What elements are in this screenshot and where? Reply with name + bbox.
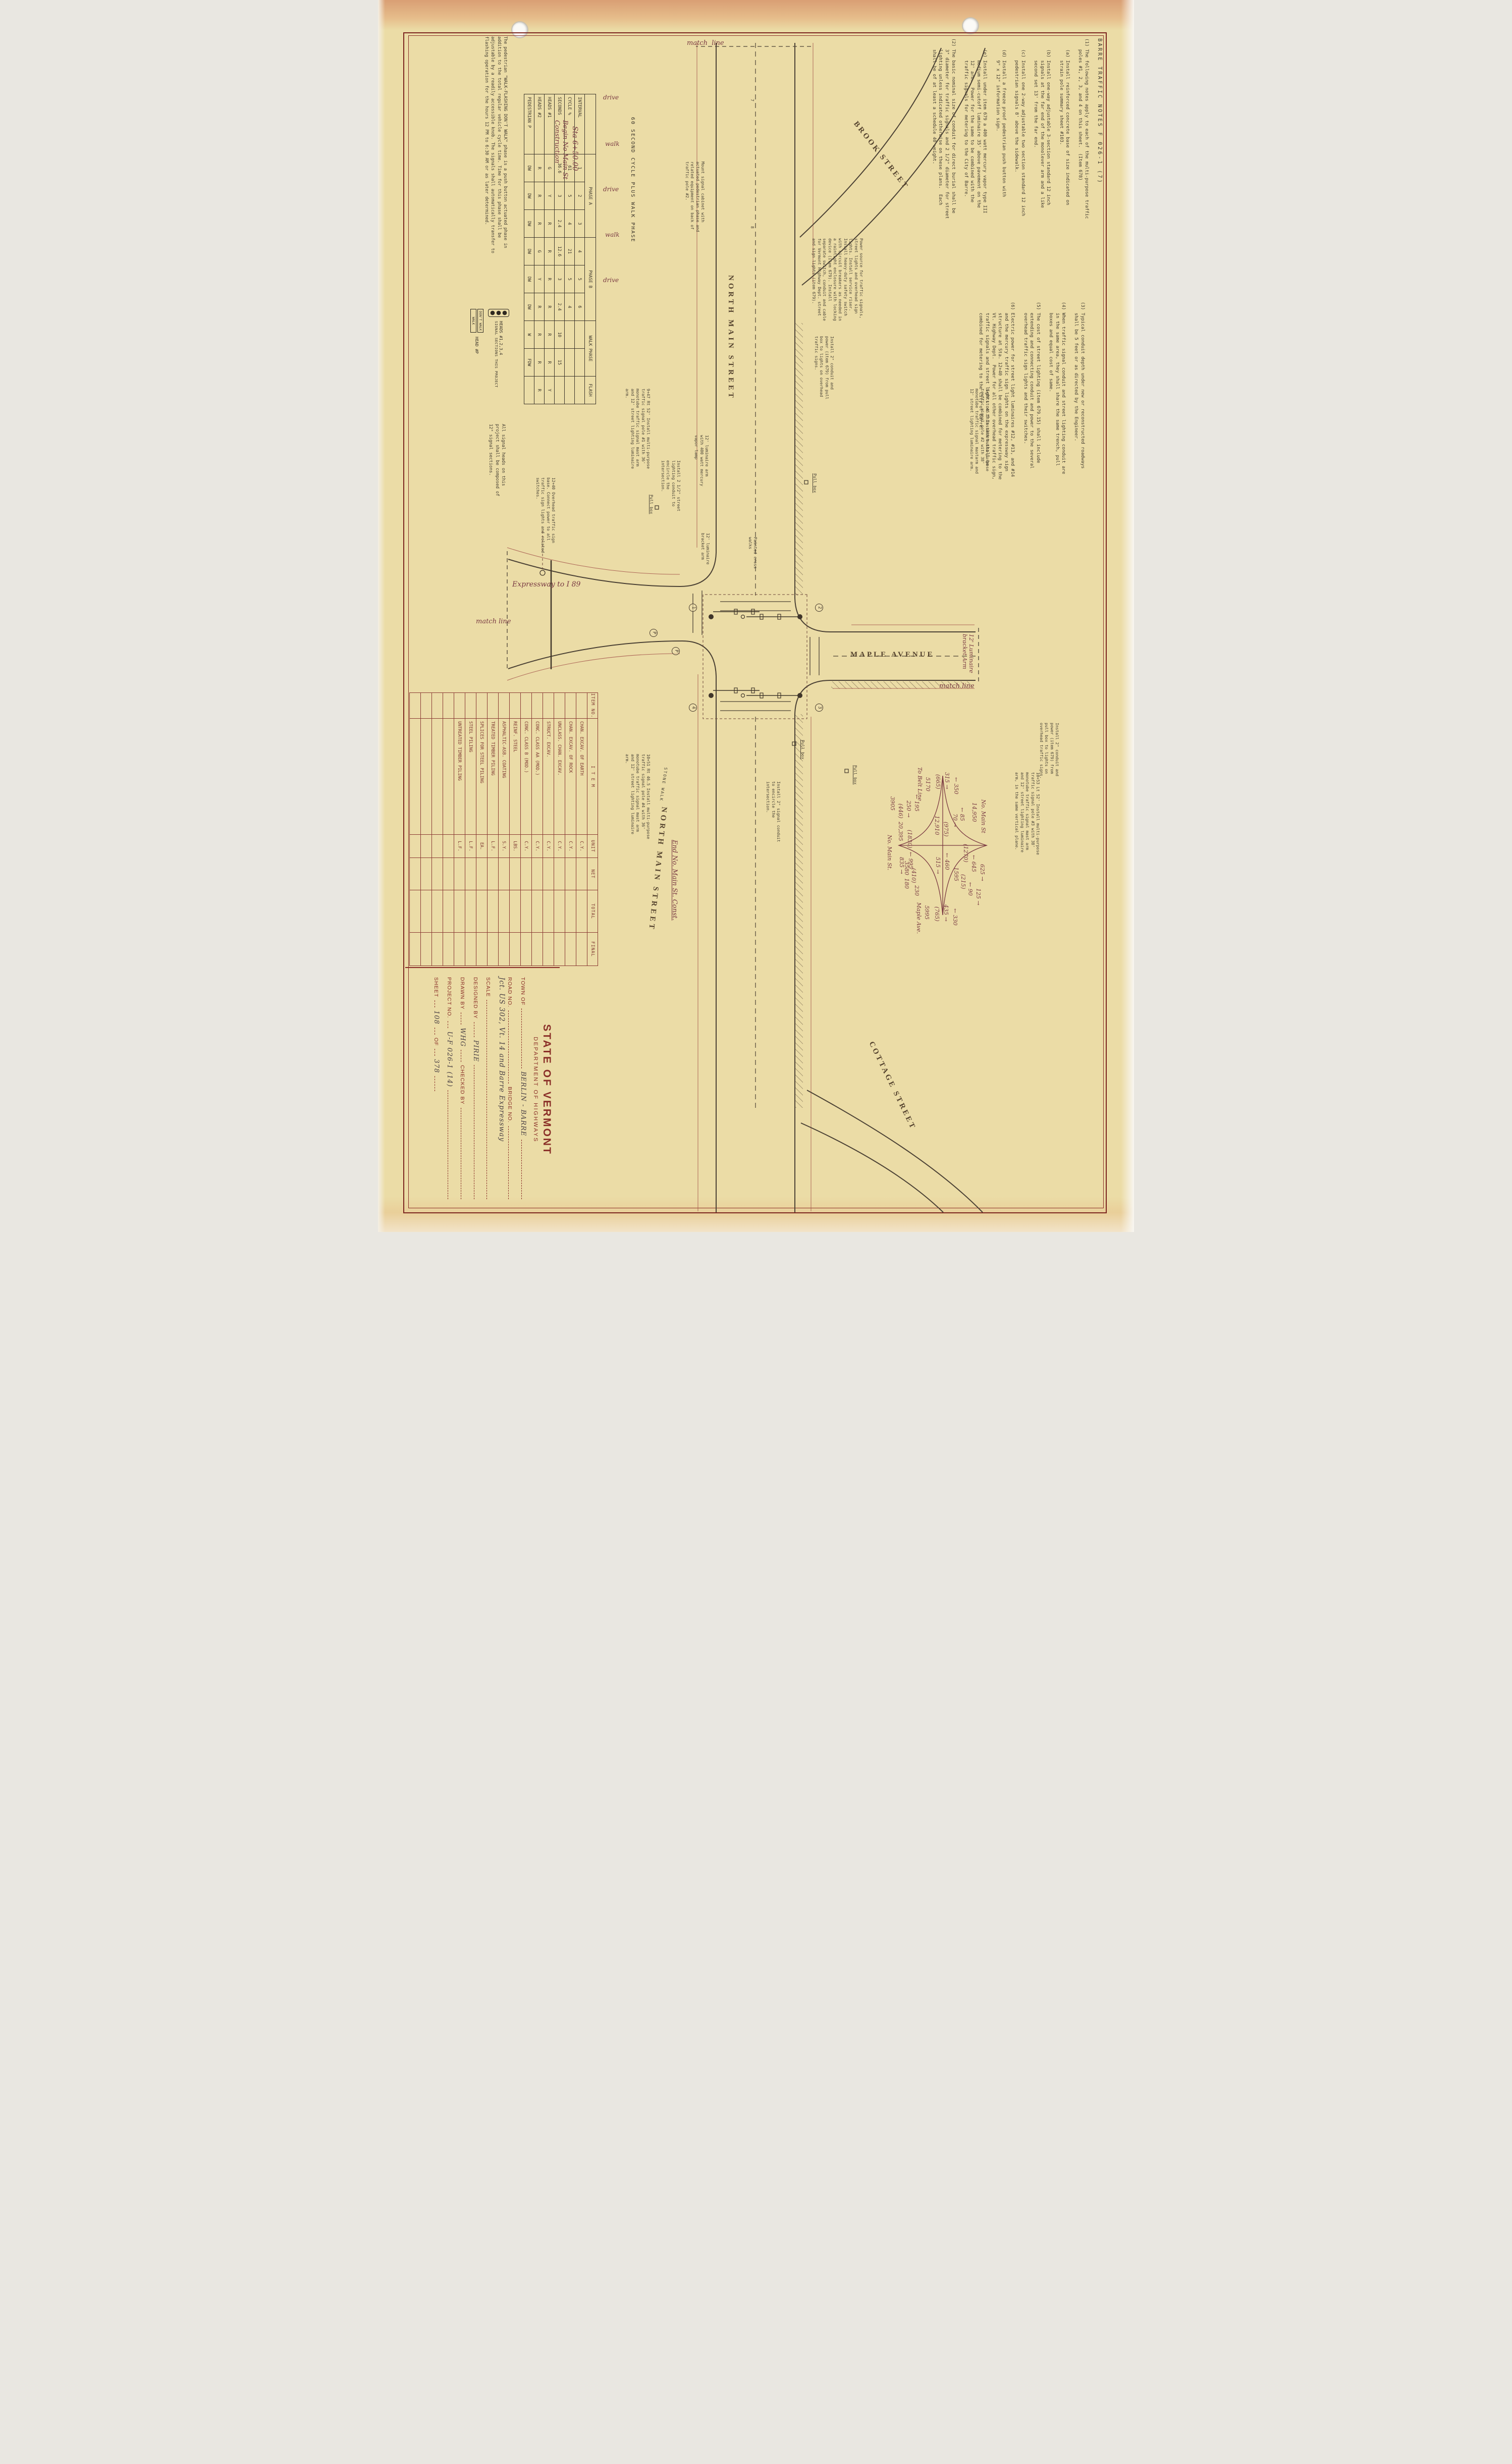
table-cell xyxy=(432,718,443,834)
table-row: TREATED TIMBER PILINGL.F. xyxy=(488,693,499,966)
annotation: 3 xyxy=(815,704,823,712)
annotation: walk xyxy=(605,140,620,148)
table-row: ASPHALTIC-ASB. COATINGS.Y. xyxy=(499,693,510,966)
project-no-value: U-F 026-1 (14) xyxy=(446,1031,453,1087)
items-table: ITEM NO. I T E M UNIT NET TOTAL FINAL CH… xyxy=(409,692,598,966)
annotation: Install 2" conduit and power (item 679) … xyxy=(1038,723,1059,784)
annotation: 10+53 Lt 52' Install multi-purpose traff… xyxy=(1014,772,1040,859)
table-cell xyxy=(454,693,465,718)
annotation: 10+51 Rt 46.5 Install multi-purpose traf… xyxy=(624,754,651,841)
annotation: Pull box xyxy=(812,473,817,493)
table-cell: CHAN. EXCAV. OF EARTH xyxy=(576,718,587,834)
table-cell xyxy=(432,890,443,932)
table-cell: TREATED TIMBER PILING xyxy=(488,718,499,834)
table-cell xyxy=(488,890,499,932)
table-cell: L.F. xyxy=(454,834,465,858)
annotation: 515 → xyxy=(934,857,941,874)
annotation: Install 2 1/2" street lighting conduit t… xyxy=(660,460,681,522)
table-cell xyxy=(499,932,510,966)
table-cell xyxy=(565,932,576,966)
table-cell xyxy=(454,858,465,890)
annotation: (1830) xyxy=(906,830,913,848)
annotation: match line xyxy=(687,39,724,47)
table-cell xyxy=(499,693,510,718)
table-cell: EA. xyxy=(476,834,488,858)
annotation: End No. Main St. Const. xyxy=(670,840,678,921)
table-row xyxy=(410,693,421,966)
table-cell xyxy=(499,858,510,890)
annotation: 5170 xyxy=(924,777,931,791)
route-value: Jct. US 302, Vt. 14 and Barre Expressway xyxy=(498,977,506,1142)
table-cell: STRUCT. EXCAV. xyxy=(543,718,554,834)
table-cell xyxy=(543,693,554,718)
table-cell xyxy=(443,693,454,718)
annotation: 20,395 xyxy=(897,822,904,841)
table-row: CHAN. EXCAV. OF ROCKC.Y. xyxy=(565,693,576,966)
table-cell xyxy=(499,890,510,932)
annotation: Install 2" conduit and power (item 679) … xyxy=(813,336,834,402)
annotation: match line xyxy=(939,682,974,690)
annotation: 5995 xyxy=(923,905,930,920)
table-row: CONC. CLASS AA (MOD.)C.Y. xyxy=(532,693,543,966)
annotation: drive xyxy=(603,94,619,101)
table-cell xyxy=(432,858,443,890)
annotation: 12' Luminaire bracket Arm xyxy=(961,634,975,678)
table-cell xyxy=(476,858,488,890)
annotation: Pull box xyxy=(852,765,857,785)
table-cell xyxy=(521,932,532,966)
annotation: 250 → xyxy=(905,800,912,818)
table-cell xyxy=(510,693,521,718)
annotation: 12' luminaire bracket arm xyxy=(699,533,710,575)
annotation: 12,910 xyxy=(933,816,940,835)
table-cell xyxy=(465,890,476,932)
annotation: NORTH MAIN STREET xyxy=(726,275,735,400)
annotation: 4 xyxy=(689,704,697,712)
annotation: 14,950 xyxy=(970,802,978,822)
annotation: Begin No Main St Construction xyxy=(553,120,569,206)
annotation: Pull box xyxy=(800,740,805,760)
annotation: ← 330 xyxy=(951,908,958,926)
annotation: COTTAGE STREET xyxy=(867,1040,917,1132)
annotation: (665) xyxy=(934,774,941,789)
table-cell xyxy=(443,834,454,858)
table-row xyxy=(421,693,432,966)
annotation: 2 xyxy=(815,604,823,612)
annotation: No. Main St xyxy=(980,799,987,833)
table-cell xyxy=(432,693,443,718)
table-cell xyxy=(554,890,565,932)
table-row: STEEL PILINGL.F. xyxy=(465,693,476,966)
table-row: CHAN. EXCAV. OF EARTHC.Y. xyxy=(576,693,587,966)
table-cell: C.Y. xyxy=(576,834,587,858)
annotation: 12' luminaire arm with 400 watt mercury … xyxy=(693,435,709,488)
town-value: BERLIN - BARRE xyxy=(519,1072,527,1137)
table-cell xyxy=(421,858,432,890)
table-cell: UNTREATED TIMBER PILING xyxy=(454,718,465,834)
table-row: UNTREATED TIMBER PILINGL.F. xyxy=(454,693,465,966)
table-cell xyxy=(510,890,521,932)
table-cell xyxy=(421,693,432,718)
annotation: Mount signal cabinet with actuated pedes… xyxy=(684,162,705,243)
annotation: 1595 xyxy=(952,867,959,881)
table-cell xyxy=(565,890,576,932)
table-cell: C.Y. xyxy=(532,834,543,858)
table-row: SPLICES FOR STEEL PILINGEA. xyxy=(476,693,488,966)
table-cell xyxy=(443,932,454,966)
annotation: drive xyxy=(603,186,619,193)
annotation: Maple Ave. xyxy=(915,902,922,934)
road-no-label: ROAD NO. xyxy=(507,977,513,1007)
table-cell: L.F. xyxy=(465,834,476,858)
annotation: 8 xyxy=(749,226,754,229)
annotation: ← 350 xyxy=(952,777,959,794)
table-cell xyxy=(454,932,465,966)
designed-by-value: PIRIE xyxy=(472,1040,479,1062)
table-row: STRUCT. EXCAV.C.Y. xyxy=(543,693,554,966)
annotation: STONE WALK xyxy=(658,767,668,802)
annotation: (410) xyxy=(910,868,917,883)
table-cell xyxy=(521,693,532,718)
annotation: 315 → xyxy=(943,772,950,789)
annotation: 625 → xyxy=(979,864,986,881)
table-cell xyxy=(521,890,532,932)
annotation: ← 195 xyxy=(913,794,920,812)
table-cell xyxy=(554,858,565,890)
table-cell xyxy=(421,890,432,932)
table-cell: STEEL PILING xyxy=(465,718,476,834)
table-cell: C.Y. xyxy=(554,834,565,858)
table-cell xyxy=(543,890,554,932)
annotation: ← 645 xyxy=(970,855,977,872)
table-row: REINF. STEELLBS. xyxy=(510,693,521,966)
annotation: 3580 xyxy=(903,861,910,875)
table-cell xyxy=(410,932,421,966)
annotation: 230 xyxy=(913,885,920,896)
table-cell xyxy=(543,858,554,890)
annotation: 1 xyxy=(689,604,697,612)
annotation: 435 → xyxy=(942,904,949,922)
annotation: ← 85 xyxy=(958,808,965,821)
table-cell: UNCLASS. CHAN. EXCAV. xyxy=(554,718,565,834)
table-cell xyxy=(532,858,543,890)
annotation: Sta 6+50.00 xyxy=(570,126,579,171)
table-cell: C.Y. xyxy=(543,834,554,858)
table-cell xyxy=(488,858,499,890)
annotation: 180 xyxy=(903,878,910,889)
agency-dept: DEPARTMENT OF HIGHWAYS xyxy=(532,968,538,1211)
table-cell xyxy=(410,718,421,834)
table-cell: C.Y. xyxy=(521,834,532,858)
table-cell xyxy=(421,718,432,834)
table-cell xyxy=(488,693,499,718)
items-table-header: ITEM NO. I T E M UNIT NET TOTAL FINAL xyxy=(587,693,598,966)
table-cell xyxy=(476,890,488,932)
table-cell xyxy=(443,890,454,932)
annotation: Painted cross walks xyxy=(747,537,758,569)
project-no-label: PROJECT NO. xyxy=(446,977,452,1018)
annotation: 7 xyxy=(749,99,754,101)
drawn-by-label: DRAWN BY xyxy=(459,977,465,1009)
table-cell xyxy=(410,890,421,932)
agency-name: STATE OF VERMONT xyxy=(541,968,553,1211)
table-cell xyxy=(410,834,421,858)
annotation: (765) xyxy=(933,906,940,922)
table-cell xyxy=(565,858,576,890)
annotation: drive xyxy=(603,277,619,284)
annotation: P xyxy=(672,647,680,655)
annotation: Pull box xyxy=(649,495,654,514)
table-cell xyxy=(576,858,587,890)
annotation: (446) xyxy=(897,804,904,819)
of-label: OF xyxy=(433,1038,439,1046)
table-cell xyxy=(510,858,521,890)
annotation: ← 460 xyxy=(943,853,950,870)
table-row: CONC. CLASS B (MOD.)C.Y. xyxy=(521,693,532,966)
table-cell xyxy=(476,693,488,718)
annotation: 12+40 Overhead traffic sign base. Connec… xyxy=(534,477,556,554)
table-cell xyxy=(576,932,587,966)
table-cell xyxy=(543,932,554,966)
table-cell xyxy=(554,693,565,718)
drawing-sheet-landscape: BARRE TRAFFIC NOTES F 026-1 (7) (1) The … xyxy=(378,0,1134,1232)
annotation: P xyxy=(650,629,658,637)
sheet-label: SHEET xyxy=(433,977,439,997)
scanned-plan-sheet: BARRE TRAFFIC NOTES F 026-1 (7) (1) The … xyxy=(378,0,1134,1232)
annotation: 9+47 Rt 52' Install multi-purpose traffi… xyxy=(624,389,651,475)
annotation: Install 2" signal conduit to encircle th… xyxy=(765,781,781,845)
table-cell xyxy=(521,858,532,890)
annotation: Expressway to I 89 xyxy=(512,580,580,590)
annotation: (215) xyxy=(959,874,966,889)
table-cell xyxy=(454,890,465,932)
annotation: ← 90 xyxy=(966,882,974,896)
table-cell xyxy=(421,932,432,966)
table-cell xyxy=(465,693,476,718)
bridge-no-label: BRIDGE NO. xyxy=(507,1087,513,1123)
table-cell xyxy=(576,693,587,718)
table-cell: SPLICES FOR STEEL PILING xyxy=(476,718,488,834)
table-cell xyxy=(465,932,476,966)
table-cell: ASPHALTIC-ASB. COATING xyxy=(499,718,510,834)
designed-by-label: DESIGNED BY xyxy=(472,977,478,1019)
annotation: 3905 xyxy=(889,796,896,811)
annotation: Power source for traffic signals, street… xyxy=(811,238,863,323)
town-label: TOWN OF xyxy=(520,977,526,1005)
annotation: 125 → xyxy=(975,888,982,905)
title-block: STATE OF VERMONT DEPARTMENT OF HIGHWAYS … xyxy=(405,967,560,1211)
table-cell xyxy=(565,693,576,718)
table-cell xyxy=(432,834,443,858)
table-cell xyxy=(576,890,587,932)
table-cell xyxy=(421,834,432,858)
annotation: walk xyxy=(605,231,620,239)
table-cell xyxy=(532,932,543,966)
annotation: 9+49 Lt 45.5 Install multi-purpose traff… xyxy=(968,389,990,475)
table-cell xyxy=(443,718,454,834)
annotation: (1270) xyxy=(962,844,969,863)
checked-by-label: CHECKED BY xyxy=(459,1065,465,1104)
total-sheets: 378 xyxy=(433,1059,440,1073)
table-cell: CHAN. EXCAV. OF ROCK xyxy=(565,718,576,834)
table-cell xyxy=(476,932,488,966)
table-row xyxy=(432,693,443,966)
table-cell xyxy=(532,693,543,718)
table-cell xyxy=(532,890,543,932)
table-cell: CONC. CLASS B (MOD.) xyxy=(521,718,532,834)
table-cell: L.F. xyxy=(488,834,499,858)
table-cell: C.Y. xyxy=(565,834,576,858)
table-cell: REINF. STEEL xyxy=(510,718,521,834)
table-cell xyxy=(465,858,476,890)
annotation: 70 → xyxy=(951,814,958,827)
table-cell xyxy=(443,858,454,890)
annotation: BROOK STREET xyxy=(851,120,910,192)
scale-label: SCALE xyxy=(485,977,491,997)
sheet-number: 108 xyxy=(433,1010,440,1025)
table-row: UNCLASS. CHAN. EXCAV.C.Y. xyxy=(554,693,565,966)
table-cell xyxy=(488,932,499,966)
drawn-by-value: WHG xyxy=(459,1028,466,1047)
table-cell xyxy=(510,932,521,966)
table-cell: LBS. xyxy=(510,834,521,858)
annotation: No. Main St. xyxy=(886,835,893,870)
table-row xyxy=(443,693,454,966)
table-cell xyxy=(410,693,421,718)
annotation: MAPLE AVENUE xyxy=(850,650,935,660)
annotation: match line xyxy=(476,618,511,626)
table-cell xyxy=(554,932,565,966)
table-cell: S.Y. xyxy=(499,834,510,858)
table-cell: CONC. CLASS AA (MOD.) xyxy=(532,718,543,834)
annotation: (975) xyxy=(942,822,949,837)
table-cell xyxy=(410,858,421,890)
table-cell xyxy=(432,932,443,966)
